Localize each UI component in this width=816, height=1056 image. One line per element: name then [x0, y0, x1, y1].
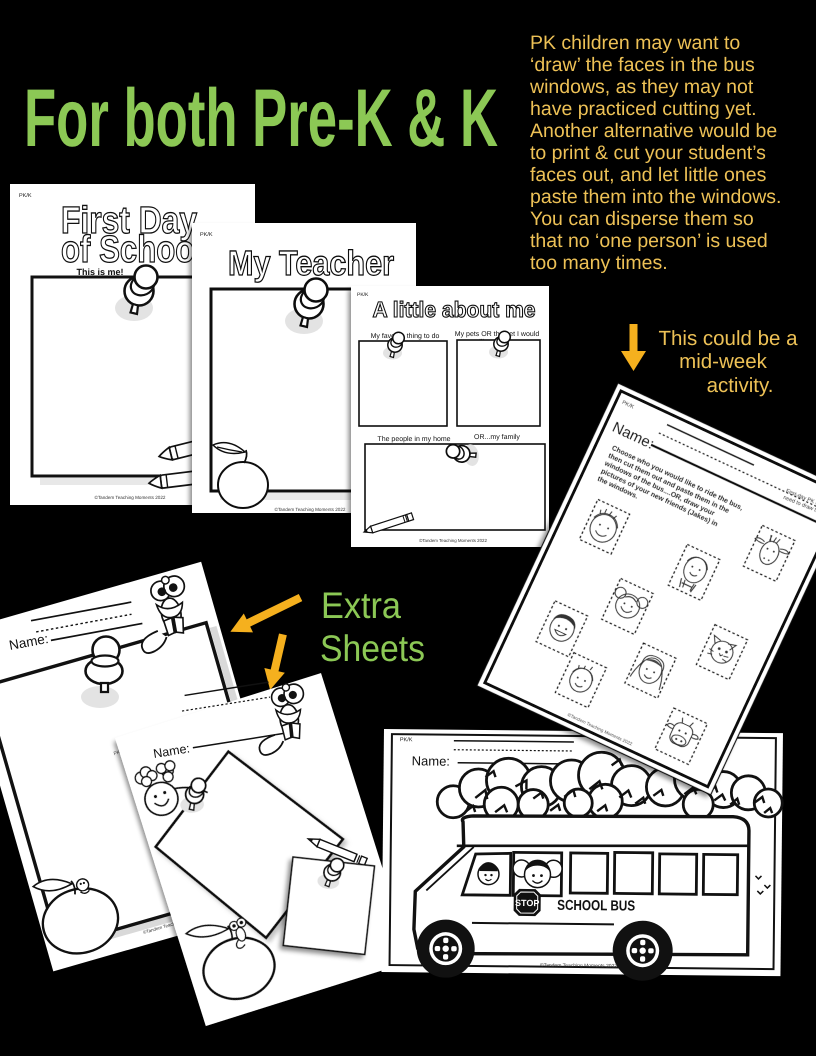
svg-text:to print & cut your student’s: to print & cut your student’s: [530, 142, 766, 164]
svg-text:PK/K: PK/K: [357, 292, 369, 298]
svg-text:The people in my home: The people in my home: [377, 435, 450, 443]
svg-text:My pets OR the pet I would: My pets OR the pet I would: [455, 330, 540, 338]
svg-text:©Tandem Teaching Moments 2022: ©Tandem Teaching Moments 2022: [95, 495, 166, 500]
svg-text:PK/K: PK/K: [19, 193, 32, 199]
svg-text:have practiced cutting yet.: have practiced cutting yet.: [530, 98, 757, 120]
svg-text:OR...my family: OR...my family: [474, 433, 520, 441]
svg-text:My Teacher: My Teacher: [228, 244, 394, 283]
svg-text:A little about me: A little about me: [373, 297, 536, 322]
svg-text:PK/K: PK/K: [400, 737, 413, 743]
svg-text:paste them into the windows.: paste them into the windows.: [530, 186, 781, 208]
svg-text:STOP: STOP: [515, 898, 539, 908]
svg-text:©Tandem Teaching Moments 2022: ©Tandem Teaching Moments 2022: [275, 507, 346, 512]
svg-text:of School: of School: [61, 229, 203, 271]
svg-text:You can disperse them so: You can disperse them so: [530, 208, 754, 230]
svg-text:Extra: Extra: [321, 585, 401, 626]
svg-text:activity.: activity.: [707, 374, 774, 397]
svg-text:faces out, and let little ones: faces out, and let little ones: [530, 164, 767, 186]
svg-text:windows, as they may not: windows, as they may not: [529, 76, 754, 98]
svg-text:too many times.: too many times.: [530, 252, 668, 274]
svg-text:Another alternative would be: Another alternative would be: [530, 120, 777, 142]
svg-text:This could be a: This could be a: [658, 327, 798, 350]
svg-text:My favorite thing to do: My favorite thing to do: [371, 332, 440, 340]
svg-text:©Tandem Teaching Moments 2022: ©Tandem Teaching Moments 2022: [419, 538, 487, 543]
svg-text:PK children may want to: PK children may want to: [530, 32, 740, 54]
svg-text:mid-week: mid-week: [679, 350, 767, 373]
svg-text:Name:: Name:: [412, 753, 450, 768]
svg-text:PK/K: PK/K: [200, 232, 213, 238]
svg-text:that no ‘one person’ is used: that no ‘one person’ is used: [530, 230, 768, 252]
svg-text:©Tandem Teaching Moments 2022: ©Tandem Teaching Moments 2022: [540, 963, 618, 970]
svg-text:SCHOOL BUS: SCHOOL BUS: [557, 898, 635, 915]
svg-text:‘draw’ the faces in the bus: ‘draw’ the faces in the bus: [530, 54, 755, 76]
svg-text:Sheets: Sheets: [320, 628, 425, 669]
svg-text:For both Pre-K & K: For both Pre-K & K: [24, 73, 498, 164]
